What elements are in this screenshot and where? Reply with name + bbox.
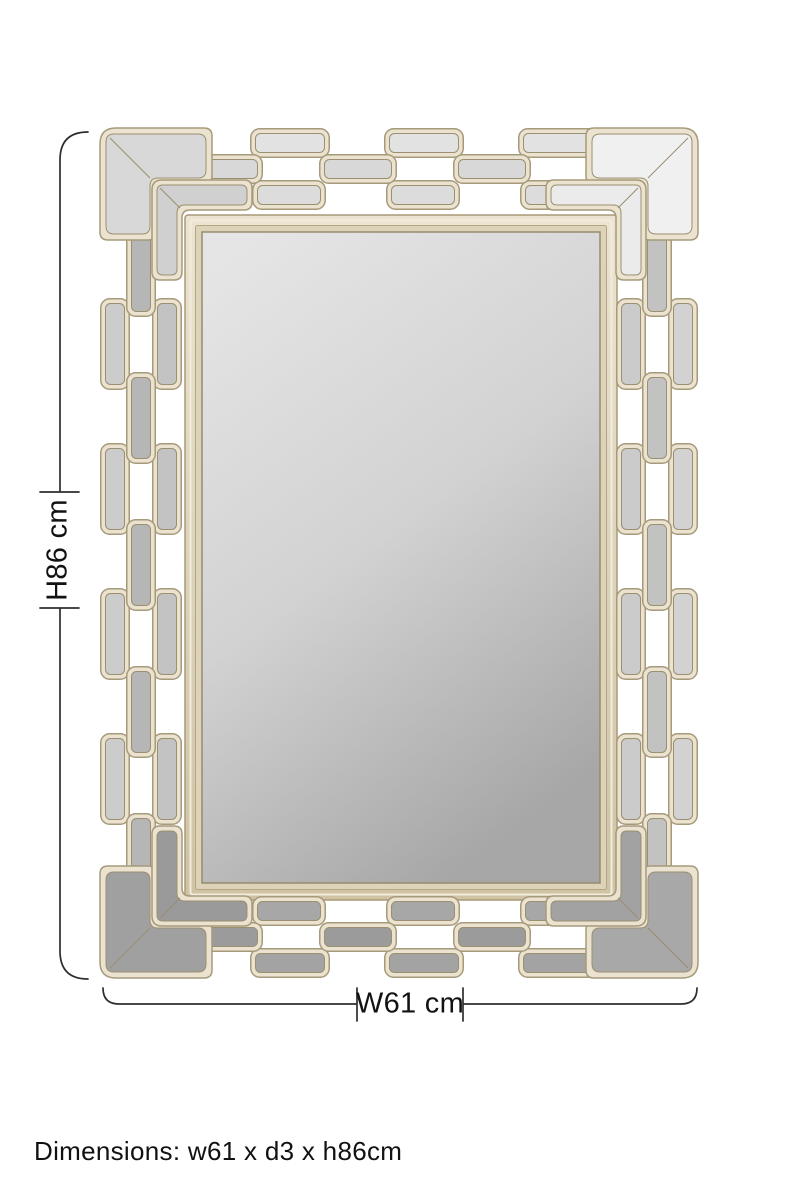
width-dimension-label: W61 cm bbox=[356, 988, 464, 1021]
product-dimension-diagram: H86 cm W61 cm Dimensions: w61 x d3 x h86… bbox=[0, 0, 794, 1200]
mirror-glass bbox=[202, 232, 600, 883]
chain-border-right bbox=[617, 226, 698, 905]
chain-border-left bbox=[101, 226, 182, 905]
inner-frame bbox=[185, 215, 617, 900]
height-dimension-label: H86 cm bbox=[42, 499, 75, 601]
dimensions-caption: Dimensions: w61 x d3 x h86cm bbox=[34, 1136, 402, 1167]
